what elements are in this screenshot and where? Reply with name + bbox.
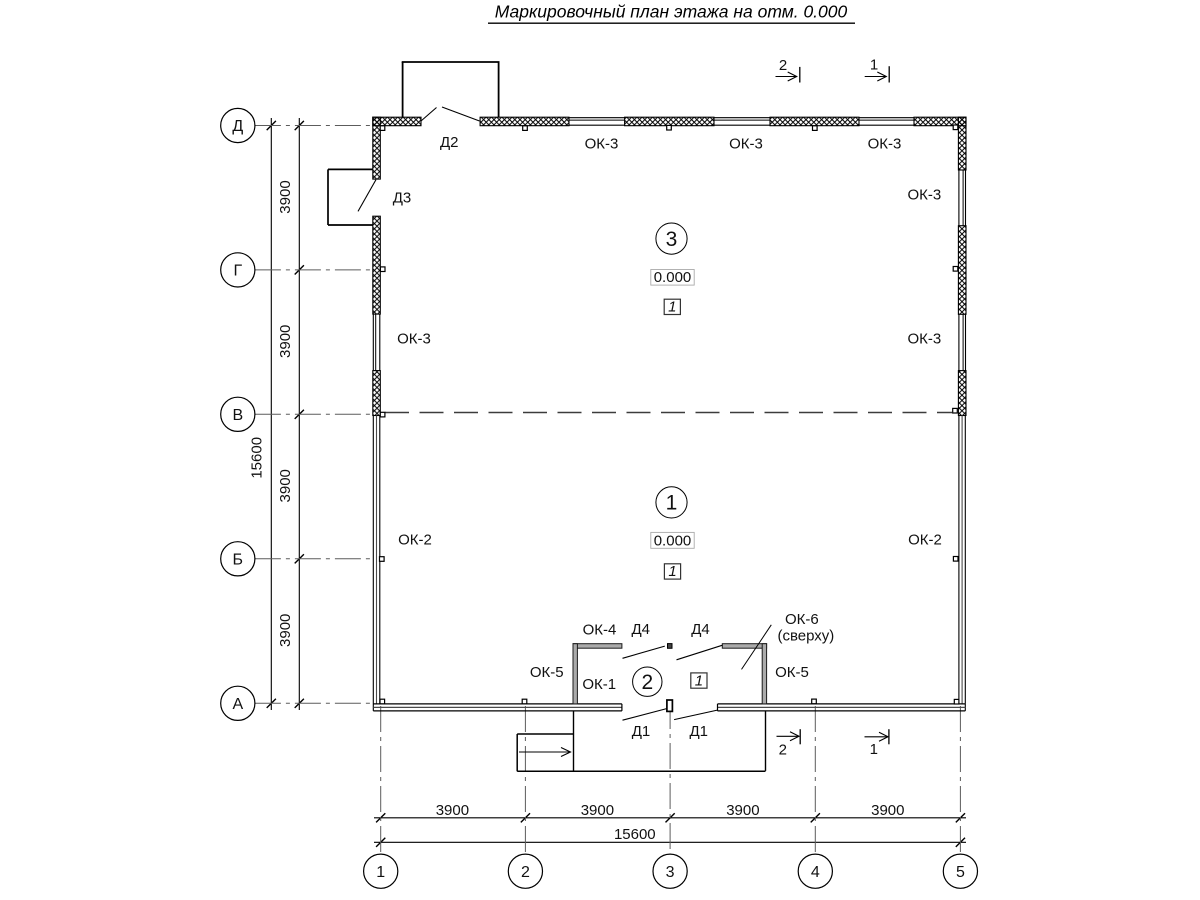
svg-text:Д4: Д4 bbox=[691, 621, 710, 638]
svg-text:(сверху): (сверху) bbox=[777, 628, 834, 645]
svg-text:3900: 3900 bbox=[277, 469, 294, 502]
svg-text:3900: 3900 bbox=[436, 802, 469, 819]
svg-text:Д1: Д1 bbox=[689, 723, 708, 740]
svg-text:Маркировочный план этажа на от: Маркировочный план этажа на отм. 0.000 bbox=[495, 2, 848, 22]
svg-text:ОК-3: ОК-3 bbox=[908, 331, 942, 348]
svg-text:2: 2 bbox=[521, 864, 530, 881]
svg-text:3: 3 bbox=[666, 864, 675, 881]
svg-text:3900: 3900 bbox=[277, 614, 294, 647]
svg-text:ОК-6: ОК-6 bbox=[785, 611, 819, 628]
svg-text:2: 2 bbox=[641, 671, 653, 694]
svg-text:15600: 15600 bbox=[614, 826, 656, 843]
svg-text:ОК-3: ОК-3 bbox=[397, 331, 431, 348]
svg-text:Д3: Д3 bbox=[393, 190, 412, 207]
svg-text:4: 4 bbox=[811, 864, 820, 881]
svg-text:В: В bbox=[232, 407, 243, 424]
svg-text:1: 1 bbox=[668, 563, 676, 580]
svg-text:ОК-5: ОК-5 bbox=[530, 664, 564, 681]
svg-text:ОК-2: ОК-2 bbox=[908, 531, 942, 548]
svg-text:1: 1 bbox=[870, 741, 878, 758]
svg-text:Д2: Д2 bbox=[440, 134, 459, 151]
svg-text:А: А bbox=[232, 696, 243, 713]
svg-text:1: 1 bbox=[668, 299, 676, 316]
svg-text:3900: 3900 bbox=[277, 180, 294, 213]
svg-text:Д4: Д4 bbox=[631, 621, 650, 638]
svg-text:Г: Г bbox=[233, 263, 242, 280]
svg-text:ОК-1: ОК-1 bbox=[582, 676, 616, 693]
svg-text:3900: 3900 bbox=[581, 802, 614, 819]
svg-text:3: 3 bbox=[666, 228, 678, 251]
svg-text:1: 1 bbox=[870, 56, 878, 73]
svg-text:1: 1 bbox=[695, 672, 703, 689]
svg-text:Б: Б bbox=[233, 551, 244, 568]
svg-text:ОК-3: ОК-3 bbox=[585, 136, 619, 153]
svg-text:ОК-2: ОК-2 bbox=[398, 531, 432, 548]
svg-text:3900: 3900 bbox=[726, 802, 759, 819]
svg-text:3900: 3900 bbox=[871, 802, 904, 819]
svg-text:ОК-3: ОК-3 bbox=[908, 187, 942, 204]
svg-text:ОК-3: ОК-3 bbox=[868, 136, 902, 153]
svg-text:Д: Д bbox=[232, 118, 243, 135]
svg-text:2: 2 bbox=[779, 742, 787, 759]
svg-text:15600: 15600 bbox=[249, 437, 266, 479]
svg-text:Д1: Д1 bbox=[632, 723, 651, 740]
svg-text:2: 2 bbox=[779, 57, 787, 74]
svg-text:1: 1 bbox=[376, 864, 385, 881]
svg-text:3900: 3900 bbox=[277, 325, 294, 358]
svg-text:5: 5 bbox=[956, 864, 965, 881]
svg-text:1: 1 bbox=[666, 492, 678, 515]
svg-text:0.000: 0.000 bbox=[654, 269, 692, 286]
svg-text:ОК-3: ОК-3 bbox=[729, 136, 763, 153]
svg-text:ОК-5: ОК-5 bbox=[775, 664, 809, 681]
svg-text:0.000: 0.000 bbox=[654, 532, 692, 549]
svg-text:ОК-4: ОК-4 bbox=[583, 621, 617, 638]
